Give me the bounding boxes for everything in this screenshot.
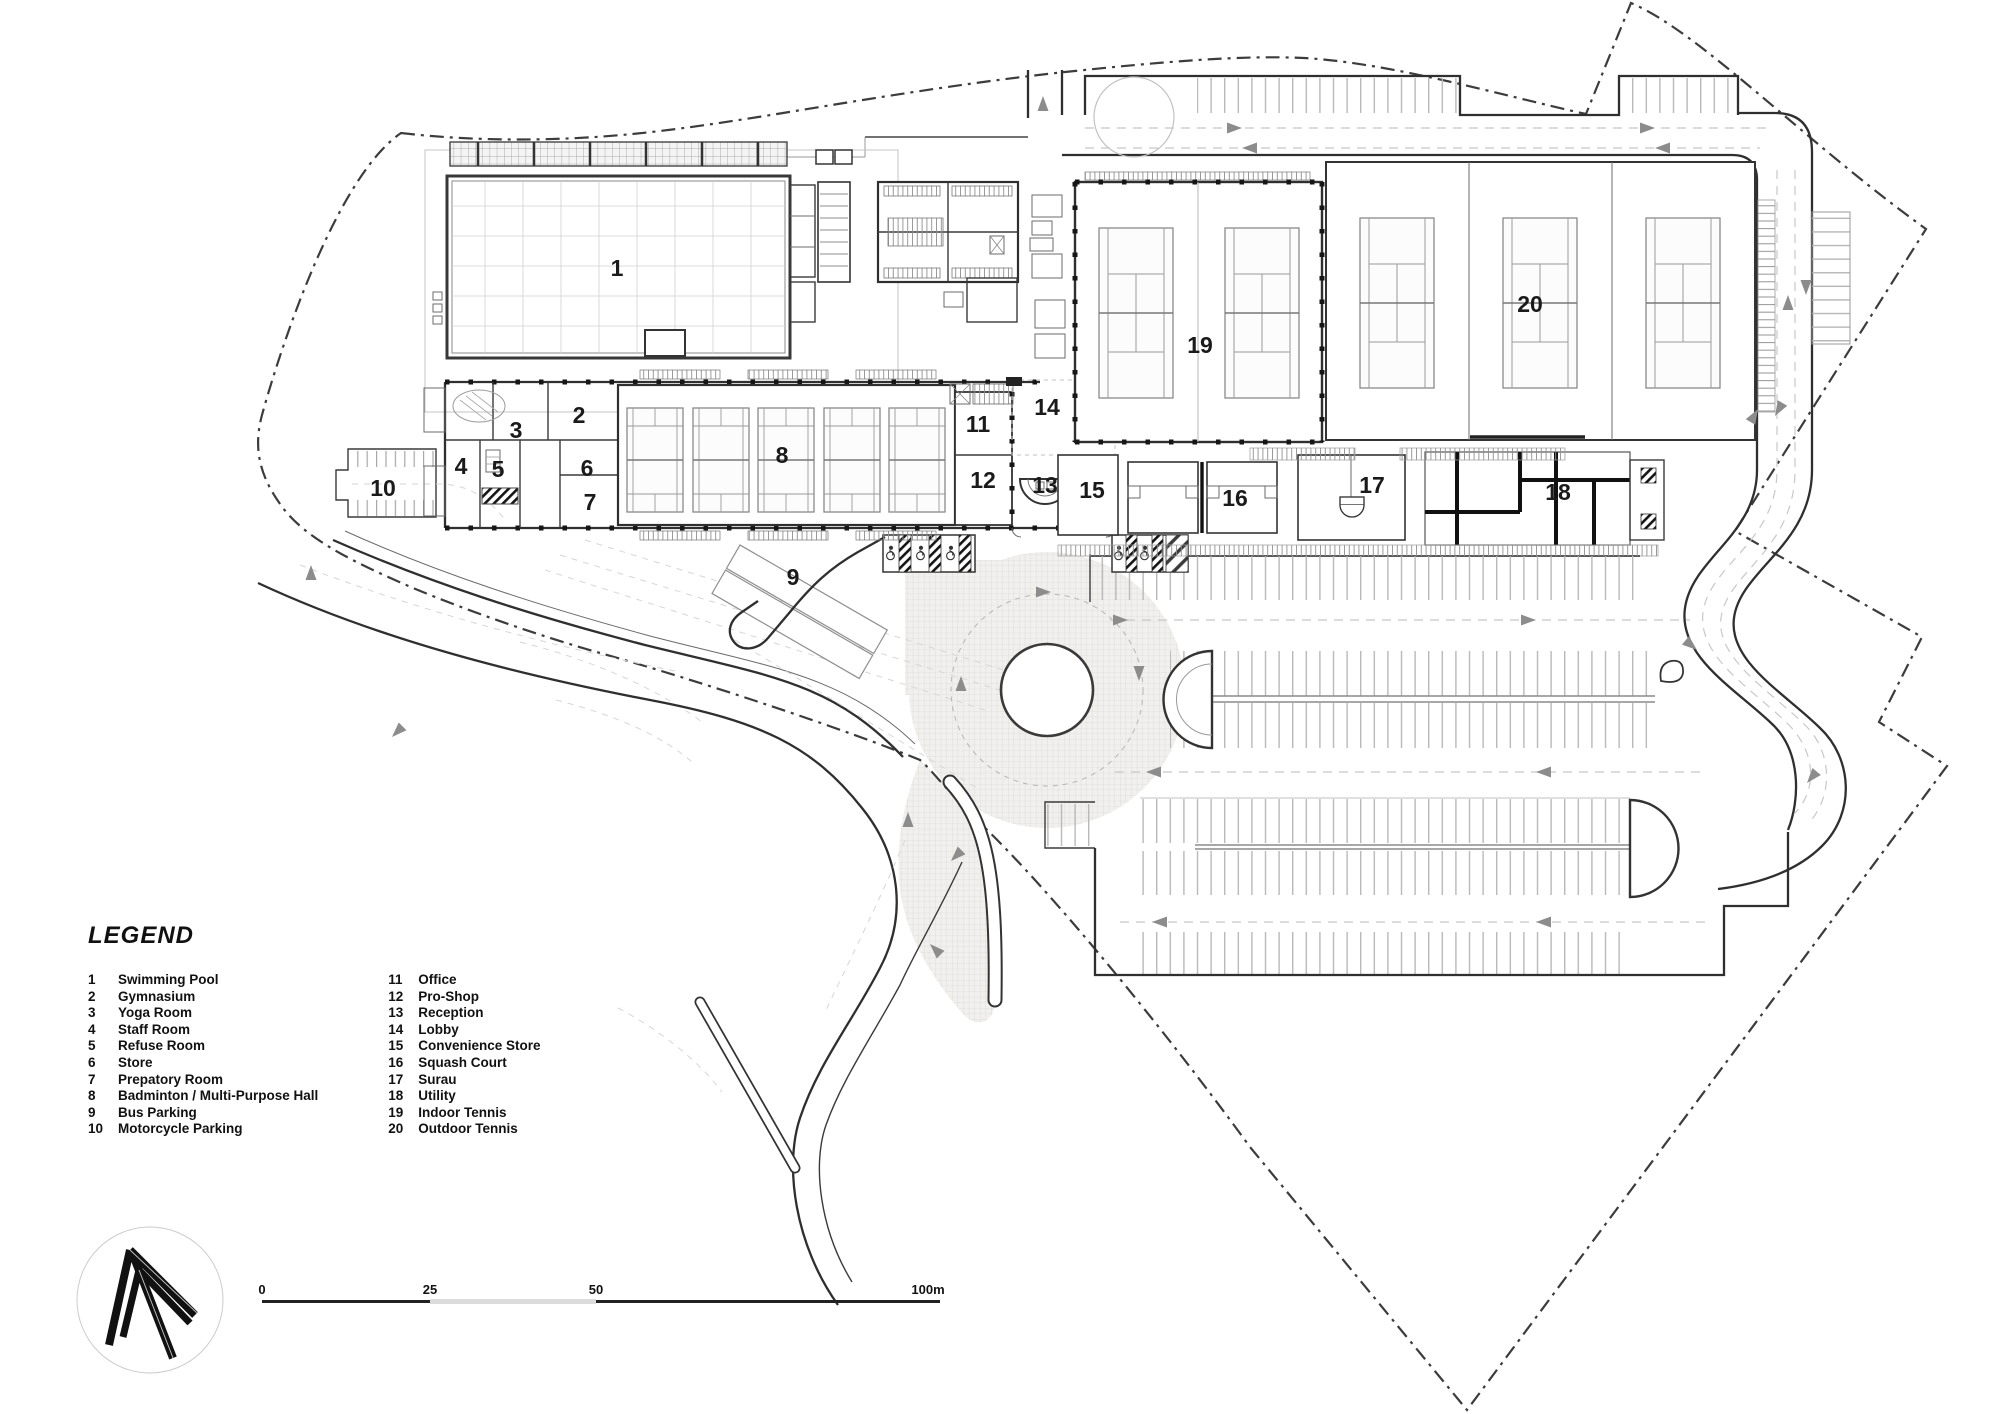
legend-item: 19 Indoor Tennis	[388, 1105, 540, 1122]
legend-item: 9 Bus Parking	[88, 1105, 318, 1122]
label-room-5: 5	[492, 456, 505, 482]
legend-item: 10 Motorcycle Parking	[88, 1121, 318, 1138]
legend-item-label: Indoor Tennis	[418, 1105, 506, 1122]
legend-item-number: 16	[388, 1055, 418, 1072]
legend-item: 11 Office	[388, 972, 540, 989]
label-room-12: 12	[970, 467, 996, 493]
label-room-14: 14	[1034, 394, 1060, 420]
legend-item: 8 Badminton / Multi-Purpose Hall	[88, 1088, 318, 1105]
legend-item-number: 2	[88, 989, 118, 1006]
legend-item-number: 12	[388, 989, 418, 1006]
legend-item-label: Bus Parking	[118, 1105, 197, 1122]
legend-item-label: Gymnasium	[118, 989, 195, 1006]
legend-item-label: Lobby	[418, 1022, 459, 1039]
legend-item-number: 9	[88, 1105, 118, 1122]
legend-item: 17 Surau	[388, 1072, 540, 1089]
legend-item-number: 14	[388, 1022, 418, 1039]
label-room-19: 19	[1187, 332, 1213, 358]
scale-tick-50: 50	[589, 1282, 603, 1297]
legend-item-label: Staff Room	[118, 1022, 190, 1039]
legend-item-label: Motorcycle Parking	[118, 1121, 243, 1138]
legend-item-number: 18	[388, 1088, 418, 1105]
legend-column-2: 11 Office 12 Pro-Shop 13 Reception 14 Lo…	[388, 972, 540, 1138]
scale-bar-line	[262, 1300, 940, 1303]
legend-item-number: 5	[88, 1038, 118, 1055]
legend-item-number: 15	[388, 1038, 418, 1055]
legend-item: 14 Lobby	[388, 1022, 540, 1039]
changing-block	[878, 182, 1065, 358]
label-room-15: 15	[1079, 477, 1105, 503]
scale-tick-25: 25	[423, 1282, 437, 1297]
legend-item-label: Prepatory Room	[118, 1072, 223, 1089]
legend-column-1: 1 Swimming Pool 2 Gymnasium 3 Yoga Room …	[88, 972, 318, 1138]
legend-title: LEGEND	[88, 922, 648, 950]
legend-item-number: 10	[88, 1121, 118, 1138]
legend-item-label: Convenience Store	[418, 1038, 540, 1055]
label-room-20: 20	[1517, 291, 1543, 317]
label-room-10: 10	[370, 475, 396, 501]
label-room-13: 13	[1032, 472, 1058, 498]
legend-item-number: 4	[88, 1022, 118, 1039]
access-roads	[258, 531, 1010, 1305]
label-room-8: 8	[776, 442, 789, 468]
label-room-4: 4	[455, 453, 468, 479]
label-room-16: 16	[1222, 485, 1248, 511]
scale-tick-0: 0	[258, 1282, 265, 1297]
label-room-2: 2	[573, 402, 586, 428]
legend-item: 2 Gymnasium	[88, 989, 318, 1006]
legend-item-label: Badminton / Multi-Purpose Hall	[118, 1088, 318, 1105]
legend-item-number: 1	[88, 972, 118, 989]
site-plan-page: 1 2 3 4 5 6 7 8 9 10 11 12 13 14 15 16 1…	[0, 0, 2000, 1414]
legend-item-number: 3	[88, 1005, 118, 1022]
main-building	[424, 370, 1115, 540]
legend-item-label: Surau	[418, 1072, 456, 1089]
legend-item-label: Outdoor Tennis	[418, 1121, 518, 1138]
label-room-6: 6	[581, 455, 594, 481]
legend-item-number: 17	[388, 1072, 418, 1089]
legend-item: 7 Prepatory Room	[88, 1072, 318, 1089]
label-room-11: 11	[966, 411, 991, 437]
legend-item-number: 8	[88, 1088, 118, 1105]
legend-item: 5 Refuse Room	[88, 1038, 318, 1055]
label-room-1: 1	[611, 255, 624, 281]
scale-bar: 0 25 50 100m	[262, 1282, 942, 1312]
label-room-7: 7	[584, 489, 597, 515]
label-room-9: 9	[787, 564, 800, 590]
legend-item-label: Pro-Shop	[418, 989, 479, 1006]
legend-item-number: 20	[388, 1121, 418, 1138]
label-room-3: 3	[510, 417, 523, 443]
roundabout-island	[1001, 644, 1093, 736]
label-room-17: 17	[1359, 472, 1385, 498]
legend-item: 1 Swimming Pool	[88, 972, 318, 989]
north-arrow	[77, 1227, 223, 1373]
legend-item-number: 6	[88, 1055, 118, 1072]
legend-item-number: 11	[388, 972, 418, 989]
legend-item-label: Yoga Room	[118, 1005, 192, 1022]
legend-item: 6 Store	[88, 1055, 318, 1072]
legend-item-label: Reception	[418, 1005, 483, 1022]
legend-item-number: 7	[88, 1072, 118, 1089]
legend-item: 3 Yoga Room	[88, 1005, 318, 1022]
scale-tick-100: 100m	[911, 1282, 944, 1297]
legend: LEGEND 1 Swimming Pool 2 Gymnasium 3 Yog…	[88, 922, 648, 1138]
legend-item: 20 Outdoor Tennis	[388, 1121, 540, 1138]
legend-item-label: Utility	[418, 1088, 456, 1105]
legend-item: 4 Staff Room	[88, 1022, 318, 1039]
legend-item-label: Office	[418, 972, 456, 989]
legend-item: 16 Squash Court	[388, 1055, 540, 1072]
indoor-tennis-hall	[1075, 172, 1322, 442]
legend-item-label: Store	[118, 1055, 153, 1072]
legend-item-number: 13	[388, 1005, 418, 1022]
legend-item: 13 Reception	[388, 1005, 540, 1022]
label-room-18: 18	[1545, 479, 1571, 505]
legend-item-label: Swimming Pool	[118, 972, 219, 989]
outdoor-tennis-courts	[1250, 162, 1755, 460]
legend-item-label: Refuse Room	[118, 1038, 205, 1055]
legend-item-label: Squash Court	[418, 1055, 507, 1072]
legend-item-number: 19	[388, 1105, 418, 1122]
bus-parking	[712, 537, 887, 678]
legend-item: 15 Convenience Store	[388, 1038, 540, 1055]
legend-item: 18 Utility	[388, 1088, 540, 1105]
legend-item: 12 Pro-Shop	[388, 989, 540, 1006]
site-plan-drawing: 1 2 3 4 5 6 7 8 9 10 11 12 13 14 15 16 1…	[0, 0, 2000, 1414]
